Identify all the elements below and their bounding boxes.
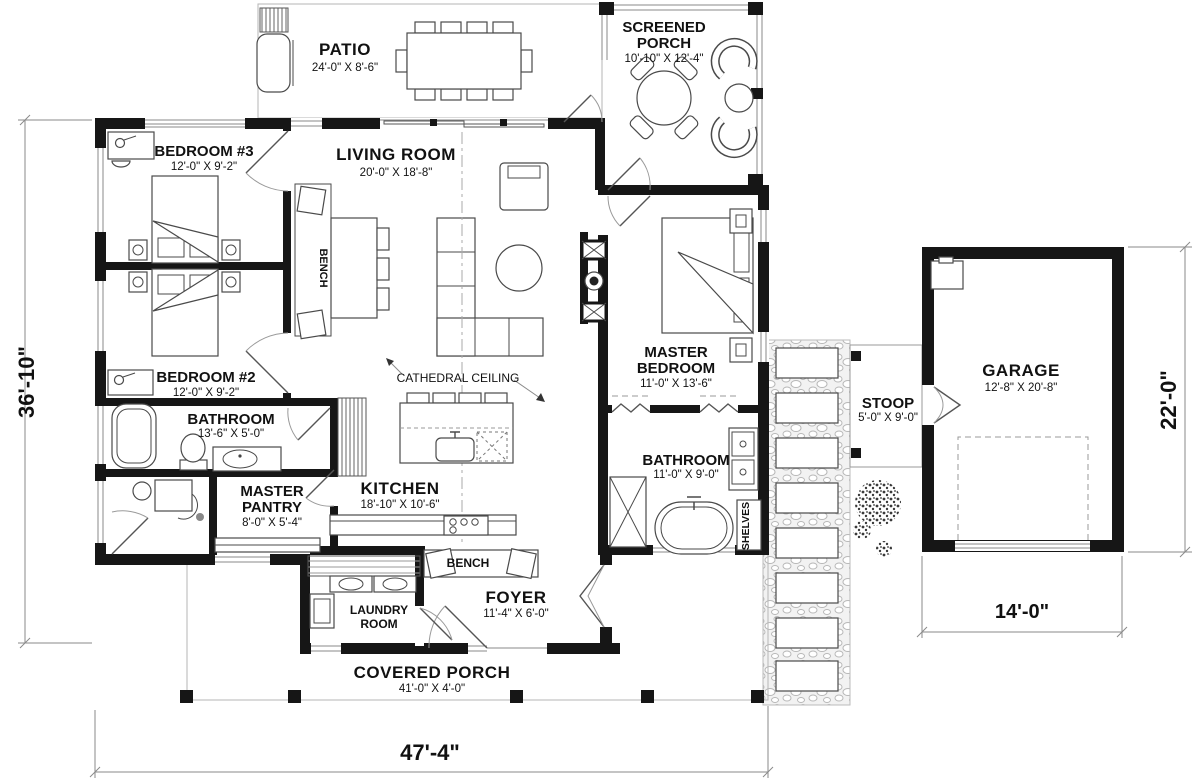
office-door bbox=[112, 511, 148, 554]
kitchen-dims: 18'-10" X 10'-6" bbox=[360, 499, 439, 511]
master-bedroom-door bbox=[608, 196, 650, 226]
vanity-sink bbox=[213, 447, 281, 471]
office-nook bbox=[133, 480, 204, 521]
master-bathroom-fixtures bbox=[610, 428, 761, 554]
kitchen-label: KITCHEN bbox=[360, 479, 439, 498]
master-bedroom-furniture bbox=[662, 209, 753, 362]
window bbox=[95, 148, 106, 232]
paver bbox=[776, 618, 838, 648]
patio-label: PATIO bbox=[319, 40, 371, 59]
patio-dims: 24'-0" X 8'-6" bbox=[312, 62, 378, 74]
media-console bbox=[331, 218, 389, 318]
floor-plan-page: PATIO 24'-0" X 8'-6" SCREENED PORCH 10'-… bbox=[0, 0, 1200, 782]
master-bathroom-label: BATHROOM bbox=[642, 452, 729, 469]
master-pantry-label-1: MASTER bbox=[240, 483, 304, 500]
paver bbox=[776, 348, 838, 378]
overall-depth-dim: 36'-10" bbox=[14, 346, 39, 418]
bathroom-door bbox=[288, 408, 330, 440]
double-vanity bbox=[729, 428, 758, 490]
garage-label: GARAGE bbox=[982, 361, 1060, 380]
window bbox=[95, 406, 106, 464]
master-bedroom-label-1: MASTER bbox=[644, 344, 708, 361]
living-room-label: LIVING ROOM bbox=[336, 145, 456, 164]
armchair bbox=[500, 163, 548, 210]
dim-garage-width bbox=[917, 556, 1127, 638]
patio-sliding-door bbox=[380, 118, 548, 129]
garage-door-track bbox=[958, 437, 1088, 540]
porch-round-table bbox=[629, 55, 700, 140]
kitchen-counter bbox=[330, 515, 516, 535]
bench-foyer-label: BENCH bbox=[447, 556, 490, 570]
gravel-walkway bbox=[763, 340, 850, 705]
window bbox=[145, 118, 245, 129]
freestanding-tub bbox=[655, 497, 733, 554]
bedroom2-label: BEDROOM #2 bbox=[156, 369, 255, 386]
screened-porch-label-2: PORCH bbox=[637, 35, 691, 52]
bench-living-label: BENCH bbox=[317, 248, 329, 287]
garage-depth-dim: 22'-0" bbox=[1156, 370, 1181, 430]
tall-cabinet bbox=[338, 398, 366, 476]
window bbox=[95, 281, 106, 351]
utility-chase bbox=[582, 241, 606, 321]
floor-plan-drawing: PATIO 24'-0" X 8'-6" SCREENED PORCH 10'-… bbox=[0, 0, 1200, 782]
paver bbox=[776, 573, 838, 603]
laundry-label-1: LAUNDRY bbox=[350, 603, 408, 617]
master-bedroom-label-2: BEDROOM bbox=[637, 360, 715, 377]
range-stove bbox=[444, 516, 488, 535]
window bbox=[758, 210, 769, 242]
stoop-label: STOOP bbox=[862, 395, 914, 412]
cathedral-ceiling-label: CATHEDRAL CEILING bbox=[397, 371, 520, 385]
paver bbox=[776, 661, 838, 691]
patio-dining-table bbox=[396, 22, 532, 100]
garage-dims: 12'-8" X 20'-8" bbox=[985, 382, 1058, 394]
master-pantry-dims: 8'-0" X 5'-4" bbox=[242, 517, 302, 529]
living-room-dims: 20'-0" X 18'-8" bbox=[360, 167, 433, 179]
bathroom-label: BATHROOM bbox=[187, 411, 274, 428]
coffee-table bbox=[496, 245, 542, 291]
bedroom3-dims: 12'-0" X 9'-2" bbox=[171, 161, 237, 173]
paver bbox=[776, 393, 838, 423]
bathroom-dims: 13'-6" X 5'-0" bbox=[198, 428, 264, 440]
porch-lounge-chairs bbox=[715, 42, 753, 153]
kitchen-island bbox=[400, 393, 513, 463]
covered-porch-label: COVERED PORCH bbox=[354, 663, 511, 682]
window bbox=[95, 481, 106, 543]
screened-porch-label-1: SCREENED bbox=[622, 19, 706, 36]
water-heater bbox=[931, 257, 963, 289]
garage-structure bbox=[922, 247, 1124, 552]
foyer-dims: 11'-4" X 6'-0" bbox=[483, 608, 548, 620]
garage-side-door bbox=[934, 387, 960, 423]
laundry-door bbox=[415, 606, 452, 646]
paver bbox=[776, 438, 838, 468]
window bbox=[758, 332, 769, 362]
master-pantry-label-2: PANTRY bbox=[242, 499, 302, 516]
window bbox=[311, 643, 341, 654]
patio-area bbox=[257, 4, 602, 118]
bedroom3-label: BEDROOM #3 bbox=[154, 143, 253, 160]
foyer-porch-double-door bbox=[580, 565, 612, 627]
paver bbox=[776, 483, 838, 513]
shelves-label: SHELVES bbox=[740, 502, 752, 550]
overall-width-dim: 47'-4" bbox=[400, 740, 460, 765]
bedroom3-door bbox=[246, 131, 288, 191]
master-bedroom-dims: 11'-0" X 13'-6" bbox=[640, 378, 712, 390]
bushes bbox=[853, 480, 901, 557]
window bbox=[288, 118, 322, 129]
laundry-label-2: ROOM bbox=[360, 617, 397, 631]
grill bbox=[257, 8, 293, 92]
bedroom2-dims: 12'-0" X 9'-2" bbox=[173, 387, 239, 399]
garage-width-dim: 14'-0" bbox=[995, 601, 1049, 623]
foyer-label: FOYER bbox=[485, 588, 546, 607]
window bbox=[215, 554, 270, 565]
master-bathroom-dims: 11'-0" X 9'-0" bbox=[653, 469, 718, 481]
paver bbox=[776, 528, 838, 558]
stoop-dims: 5'-0" X 9'-0" bbox=[858, 412, 918, 424]
screened-porch-dims: 10'-10" X 12'-4" bbox=[624, 53, 703, 65]
covered-porch-dims: 41'-0" X 4'-0" bbox=[399, 683, 465, 695]
